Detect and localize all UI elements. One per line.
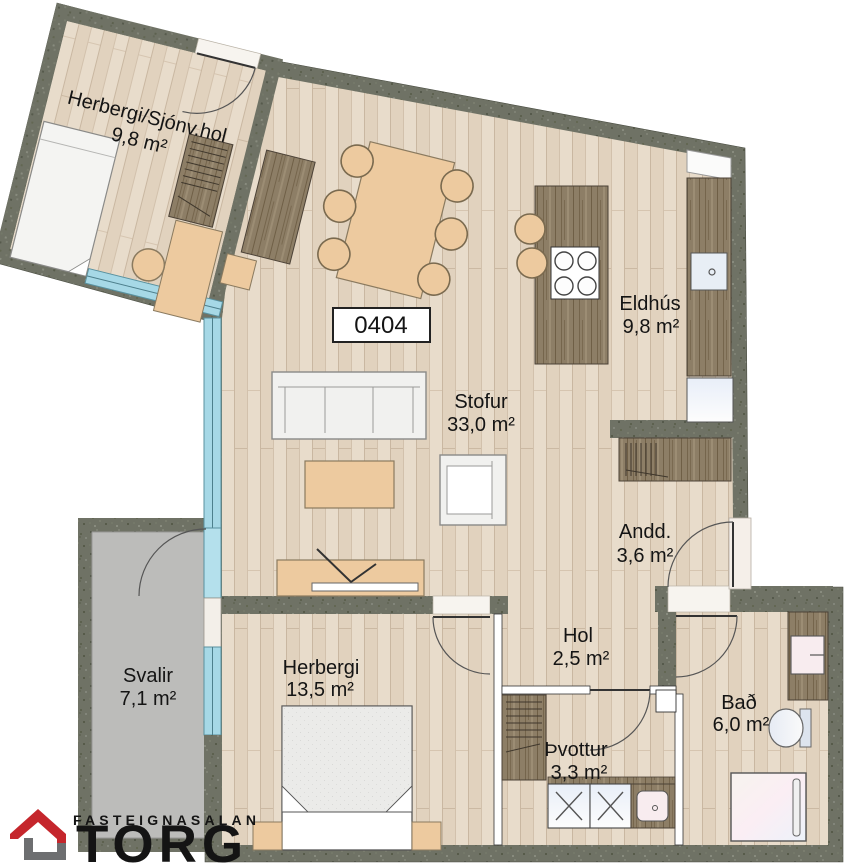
- laundry-sink: [637, 791, 668, 821]
- bedroom-door-gap: [433, 596, 490, 614]
- room-label-stofur: Stofur: [454, 391, 508, 413]
- coffee-table: [305, 461, 394, 508]
- room-label-svalir: Svalir: [123, 665, 173, 687]
- burner-icon: [578, 277, 596, 295]
- area-label-eldhus: 9,8 m²: [623, 316, 680, 338]
- armchair-seat: [447, 466, 492, 514]
- room-label-bath: Bað: [721, 692, 757, 714]
- bed-blanket: [282, 706, 412, 812]
- area-label-hol: 2,5 m²: [553, 648, 610, 670]
- nightstand: [412, 822, 441, 850]
- area-label-stofur: 33,0 m²: [447, 414, 515, 436]
- shower-drain-icon: [793, 779, 800, 836]
- bar-stool: [517, 248, 547, 278]
- shaft-box: [656, 690, 676, 712]
- room-label-anddyri: Andd.: [619, 521, 671, 543]
- toilet: [769, 709, 803, 747]
- area-label-svalir: 7,1 m²: [120, 688, 177, 710]
- room-label-eldhus: Eldhús: [619, 293, 680, 315]
- side-table: [220, 254, 256, 290]
- wall-thvottur-bath: [675, 694, 683, 845]
- room-label-hol: Hol: [563, 625, 593, 647]
- wall-hol-bath: [658, 612, 676, 695]
- area-label-herbergi: 13,5 m²: [286, 679, 354, 701]
- logo-house-right-icon: [57, 843, 66, 860]
- logo-title: TORG: [76, 815, 248, 867]
- area-label-anddyri: 3,6 m²: [617, 545, 674, 567]
- burner-icon: [578, 252, 596, 270]
- bath-door-gap: [668, 586, 730, 612]
- burner-icon: [555, 277, 573, 295]
- wall-white-segment: [204, 598, 221, 647]
- balcony-door-glass: [204, 528, 221, 598]
- balcony-wall-top: [78, 518, 208, 532]
- floor-plan: Herbergi/Sjónv.hol 9,8 m² 0404: [0, 0, 844, 867]
- area-label-bath: 6,0 m²: [713, 714, 770, 736]
- tv-shelf: [312, 583, 418, 591]
- sofa: [272, 372, 426, 439]
- wall-kitchen-anddyri: [610, 420, 733, 438]
- bar-stool: [515, 214, 545, 244]
- floor-plan-page: Herbergi/Sjónv.hol 9,8 m² 0404: [0, 0, 844, 867]
- wall-hol-thvottur: [502, 686, 590, 694]
- burner-icon: [555, 252, 573, 270]
- balcony-wall-left: [78, 518, 92, 852]
- unit-number-badge: 0404: [333, 308, 430, 342]
- unit-number: 0404: [354, 312, 407, 339]
- fridge: [687, 378, 733, 422]
- wall-herbergi-hol: [494, 614, 502, 845]
- room-label-thvottur: Þvottur: [544, 739, 608, 761]
- room-label-herbergi: Herbergi: [283, 657, 360, 679]
- wall-stofur-herbergi: [204, 596, 433, 614]
- wall-segment: [490, 596, 508, 614]
- agency-logo: FASTEIGNASALAN TORG: [10, 809, 260, 867]
- area-label-thvottur: 3,3 m²: [551, 762, 608, 784]
